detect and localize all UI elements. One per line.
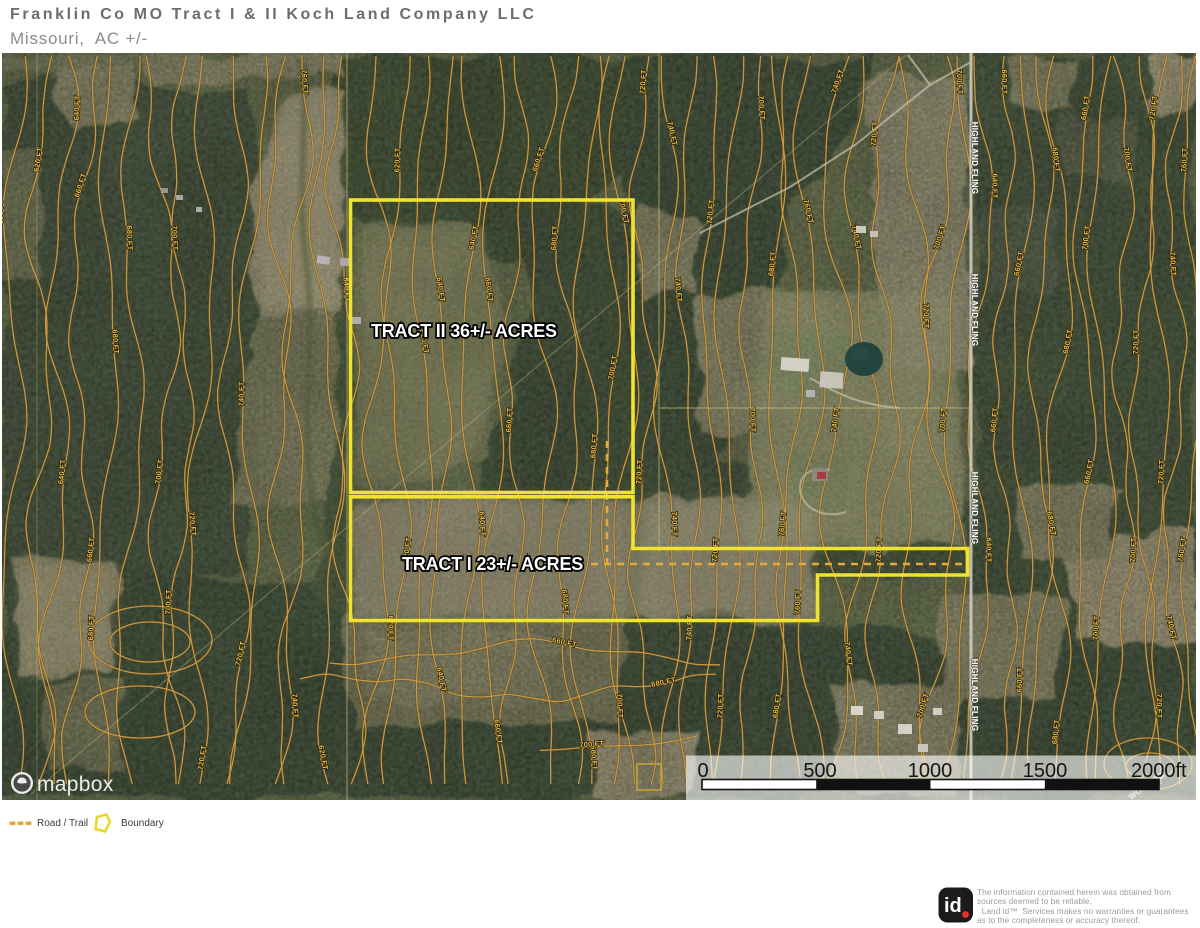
svg-text:760 FT: 760 FT — [299, 69, 310, 95]
svg-text:680 FT: 680 FT — [549, 225, 560, 251]
svg-text:640 FT: 640 FT — [991, 174, 1000, 199]
svg-text:700 FT: 700 FT — [756, 95, 767, 121]
svg-text:720 FT: 720 FT — [715, 693, 725, 718]
svg-text:660 FT: 660 FT — [504, 407, 514, 433]
svg-text:720 FT: 720 FT — [1156, 459, 1166, 485]
svg-text:HIGHLAND FLING: HIGHLAND FLING — [970, 122, 979, 195]
svg-text:620 FT: 620 FT — [392, 147, 401, 172]
svg-text:mapbox: mapbox — [37, 773, 114, 796]
svg-text:680 FT: 680 FT — [589, 745, 600, 771]
svg-text:680 FT: 680 FT — [86, 615, 96, 640]
svg-text:740 FT: 740 FT — [1168, 251, 1178, 277]
svg-text:680 FT: 680 FT — [560, 589, 571, 615]
svg-text:740 FT: 740 FT — [290, 693, 300, 719]
svg-text:HIGHLAND FLING: HIGHLAND FLING — [970, 274, 979, 347]
svg-text:700 FT: 700 FT — [748, 407, 757, 432]
svg-text:760 FT: 760 FT — [792, 589, 802, 615]
svg-text:720 FT: 720 FT — [634, 459, 644, 484]
svg-text:TRACT I 23+/- ACRES: TRACT I 23+/- ACRES — [402, 554, 583, 574]
svg-text:700 FT: 700 FT — [579, 739, 605, 750]
svg-text:720 FT: 720 FT — [1131, 329, 1140, 354]
svg-text:700 FT: 700 FT — [938, 407, 949, 433]
svg-text:HIGHLAND FLING: HIGHLAND FLING — [970, 659, 979, 732]
svg-text:740 FT: 740 FT — [237, 381, 246, 406]
svg-text:600 FT: 600 FT — [2, 199, 6, 224]
svg-text:680 FT: 680 FT — [125, 225, 135, 250]
svg-text:720 FT: 720 FT — [1155, 694, 1164, 719]
svg-text:640 FT: 640 FT — [72, 95, 82, 120]
svg-text:700 FT: 700 FT — [955, 69, 965, 94]
svg-text:740 FT: 740 FT — [670, 511, 679, 536]
svg-text:680 FT: 680 FT — [110, 329, 121, 355]
svg-text:700 FT: 700 FT — [1128, 537, 1138, 563]
svg-text:700 FT: 700 FT — [163, 589, 173, 614]
svg-text:640 FT: 640 FT — [477, 511, 487, 537]
svg-text:640 FT: 640 FT — [985, 538, 994, 563]
svg-text:660 FT: 660 FT — [1000, 69, 1009, 94]
svg-text:700 FT: 700 FT — [170, 225, 180, 250]
svg-text:700 FT: 700 FT — [615, 693, 625, 718]
svg-text:720 FT: 720 FT — [921, 303, 930, 328]
svg-text:660 FT: 660 FT — [1015, 667, 1025, 692]
svg-text:700 FT: 700 FT — [1091, 615, 1101, 641]
svg-text:id: id — [944, 895, 962, 917]
svg-text:HIGHLAND FLING: HIGHLAND FLING — [970, 472, 979, 545]
svg-text:760 FT: 760 FT — [1179, 147, 1189, 173]
svg-text:720 FT: 720 FT — [638, 69, 649, 95]
svg-text:TRACT II 36+/- ACRES: TRACT II 36+/- ACRES — [371, 321, 557, 341]
